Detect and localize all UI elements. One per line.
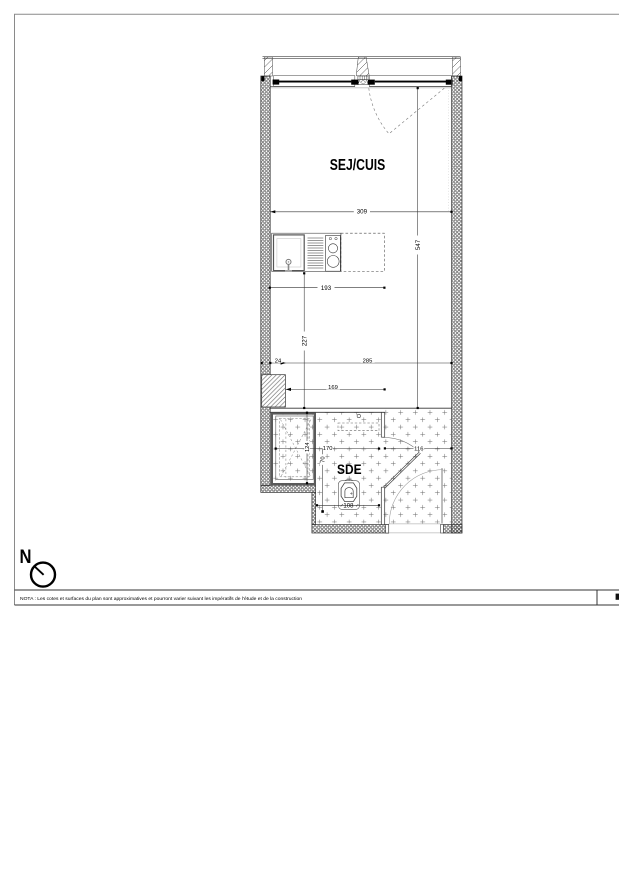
svg-text:547: 547 [415,239,422,250]
svg-text:193: 193 [321,285,332,292]
svg-text:116: 116 [414,446,423,452]
svg-text:70: 70 [321,456,327,462]
svg-text:N: N [20,546,32,568]
svg-text:227: 227 [301,335,308,346]
svg-text:124: 124 [305,442,311,452]
svg-text:108: 108 [343,504,354,510]
svg-text:309: 309 [357,208,368,215]
svg-text:24: 24 [275,358,282,364]
svg-text:169: 169 [328,385,338,391]
svg-text:SEJ/CUIS: SEJ/CUIS [330,157,386,174]
svg-text:NOTA : Les cotes et surfaces d: NOTA : Les cotes et surfaces du plan son… [20,596,302,601]
svg-text:285: 285 [363,358,373,364]
svg-text:SDE: SDE [337,462,362,477]
svg-text:170: 170 [323,446,333,452]
